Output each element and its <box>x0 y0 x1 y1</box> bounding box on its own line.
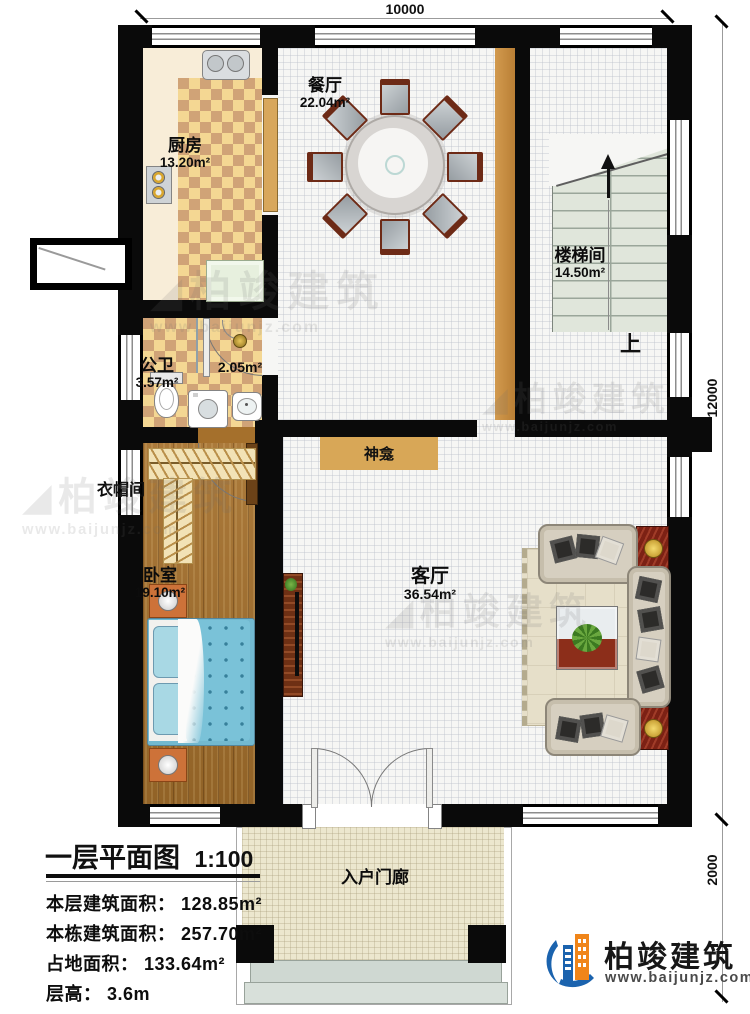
tv-cabinet <box>283 573 303 697</box>
bedroom-door-opening <box>198 427 255 443</box>
stairwell-wood-panel <box>495 48 515 420</box>
flue-flap-line <box>39 247 106 270</box>
legend-row: 层高： 3.6m <box>46 980 150 1006</box>
room-name: 楼梯间 <box>532 246 628 265</box>
dining-chair <box>447 152 483 182</box>
room-area: 22.04m² <box>280 95 370 110</box>
room-area: 13.20m² <box>140 155 230 170</box>
shrine-cabinet: 神龛 <box>320 437 438 470</box>
room-label-cloakroom: 衣帽间 <box>76 482 166 500</box>
porch-step <box>250 960 502 984</box>
floor-plan-canvas: 10000 12000 2000 上 <box>0 0 750 1014</box>
porch-column <box>468 925 506 963</box>
shower-head <box>233 334 247 348</box>
room-label-porch: 入户门廊 <box>310 868 440 887</box>
entrance-door-leaf <box>311 748 318 808</box>
pillow <box>550 536 578 564</box>
dimension-tick <box>134 9 148 23</box>
pillow <box>636 637 662 663</box>
legend-row: 占地面积： 133.64m² <box>46 950 225 976</box>
wall <box>283 420 477 437</box>
window <box>667 457 692 517</box>
wall <box>515 25 530 420</box>
porch-step <box>244 982 508 1004</box>
dining-table <box>345 115 445 215</box>
wall-flue <box>692 417 712 452</box>
cloakroom-rail <box>163 478 193 564</box>
room-name: 卧室 <box>120 566 200 585</box>
room-name: 衣帽间 <box>76 482 166 500</box>
room-area: 36.54m² <box>390 587 470 603</box>
room-name: 客厅 <box>390 566 470 587</box>
room-name: 公卫 <box>118 356 196 375</box>
room-label-kitchen: 厨房 13.20m² <box>140 136 230 170</box>
end-table-lamp <box>644 539 663 558</box>
title-underline <box>46 874 260 878</box>
burner <box>152 186 165 199</box>
sink-basin <box>227 55 244 72</box>
room-label-living: 客厅 36.54m² <box>390 566 470 603</box>
toilet-seat <box>159 388 174 410</box>
bed <box>147 618 255 746</box>
room-name: 餐厅 <box>280 76 370 95</box>
dining-chair <box>307 152 343 182</box>
dimension-porch-label: 2000 <box>704 835 720 905</box>
room-label-stairwell: 楼梯间 14.50m² <box>532 246 628 280</box>
sofa-main <box>627 566 671 708</box>
window <box>523 804 658 827</box>
room-area: 19.10m² <box>120 585 200 600</box>
porch-floor <box>242 827 504 962</box>
plan-title-row: 一层平面图 1:100 <box>45 836 253 875</box>
bathroom-sink <box>232 392 262 421</box>
room-label-hallway: 2.05m² <box>203 360 277 376</box>
window <box>152 25 260 48</box>
legend-row: 本栋建筑面积： 257.70m² <box>46 920 262 946</box>
blanket-fold <box>178 619 204 743</box>
dimension-line-top <box>140 18 670 19</box>
sink-drain <box>245 403 248 406</box>
left-flue-box <box>30 238 132 290</box>
end-table-lamp <box>644 719 663 738</box>
window <box>150 804 220 827</box>
wall <box>255 420 283 804</box>
entrance-door-leaf <box>426 748 433 808</box>
window <box>667 120 692 235</box>
pillow <box>600 714 628 742</box>
coffee-table <box>556 606 618 670</box>
kitchen-door-leaf <box>263 98 278 212</box>
up-arrow-icon <box>601 154 615 169</box>
company-logo: 柏竣建筑 www.baijunjz.com <box>544 928 744 998</box>
washer-knob <box>193 393 198 397</box>
up-arrow-icon <box>607 168 610 198</box>
sofa-loveseat <box>538 524 638 584</box>
window <box>667 333 692 397</box>
pillow <box>636 665 664 693</box>
dining-chair <box>380 79 410 115</box>
legend-row: 本层建筑面积： 128.85m² <box>46 890 262 916</box>
pillow <box>555 716 582 743</box>
room-label-bedroom: 卧室 19.10m² <box>120 566 200 600</box>
end-table <box>636 526 669 570</box>
nightstand <box>149 748 187 782</box>
burner <box>152 171 165 184</box>
lamp <box>158 755 178 775</box>
dimension-line-right <box>722 22 723 1002</box>
tv <box>295 592 299 676</box>
shrine-label: 神龛 <box>364 443 394 464</box>
pillow <box>635 576 662 603</box>
lazy-susan <box>385 155 405 175</box>
dining-chair <box>380 219 410 255</box>
title-underline-thin <box>46 881 260 882</box>
window <box>315 25 475 48</box>
stairs-up-label: 上 <box>620 328 641 358</box>
room-area: 3.57m² <box>118 375 196 390</box>
room-area: 14.50m² <box>532 265 628 280</box>
plan-title: 一层平面图 <box>45 843 180 873</box>
dimension-tick <box>660 9 674 23</box>
wall <box>515 420 668 437</box>
sink-basin <box>207 55 224 72</box>
wall <box>118 300 278 318</box>
decor-plant <box>285 578 297 591</box>
sofa-loveseat <box>545 698 641 756</box>
window <box>560 25 652 48</box>
watermark-logo-icon: ◢ <box>22 475 58 518</box>
cloakroom-rail <box>148 448 256 480</box>
entrance-opening <box>314 804 428 827</box>
company-logo-icon <box>544 928 598 988</box>
company-website: www.baijunjz.com <box>605 970 750 986</box>
stove <box>146 166 172 204</box>
kitchen-sink <box>202 50 250 80</box>
washer-door <box>198 399 218 419</box>
room-label-bathroom: 公卫 3.57m² <box>118 356 196 390</box>
plant <box>572 624 602 652</box>
room-name: 入户门廊 <box>310 868 440 887</box>
kitchen-counter <box>206 260 264 302</box>
sink-bowl <box>237 398 257 415</box>
pillow <box>637 606 664 633</box>
dimension-width-label: 10000 <box>360 1 450 17</box>
washing-machine <box>188 390 228 428</box>
shower-screen <box>196 318 198 373</box>
room-area: 2.05m² <box>203 360 277 376</box>
plan-scale: 1:100 <box>194 846 253 872</box>
room-name: 厨房 <box>140 136 230 155</box>
room-label-dining: 餐厅 22.04m² <box>280 76 370 110</box>
